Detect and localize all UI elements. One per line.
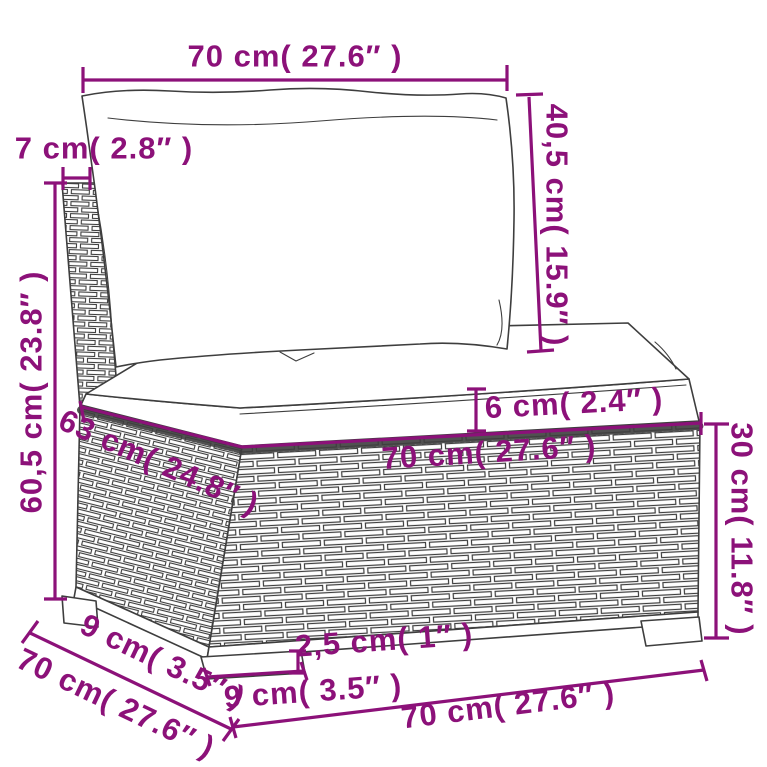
product-dimension-diagram: 70 cm( 27.6″ ) 7 cm( 2.8″ ) 40,5 cm( 15.… — [0, 0, 767, 767]
label-post-depth: 7 cm( 2.8″ ) — [15, 131, 193, 166]
dimension-diagram-canvas: 70 cm( 27.6″ ) 7 cm( 2.8″ ) 40,5 cm( 15.… — [0, 0, 767, 767]
leg-front-right — [641, 617, 702, 646]
label-back-width: 70 cm( 27.6″ ) — [188, 39, 403, 74]
label-base-height: 30 cm( 11.8″ ) — [725, 422, 760, 635]
label-overall-height: 60,5 cm( 23.8″ ) — [14, 271, 49, 514]
label-base-width: 70 cm( 27.6″ ) — [399, 675, 617, 736]
label-back-cushion-height: 40,5 cm( 15.9″ ) — [540, 104, 575, 347]
